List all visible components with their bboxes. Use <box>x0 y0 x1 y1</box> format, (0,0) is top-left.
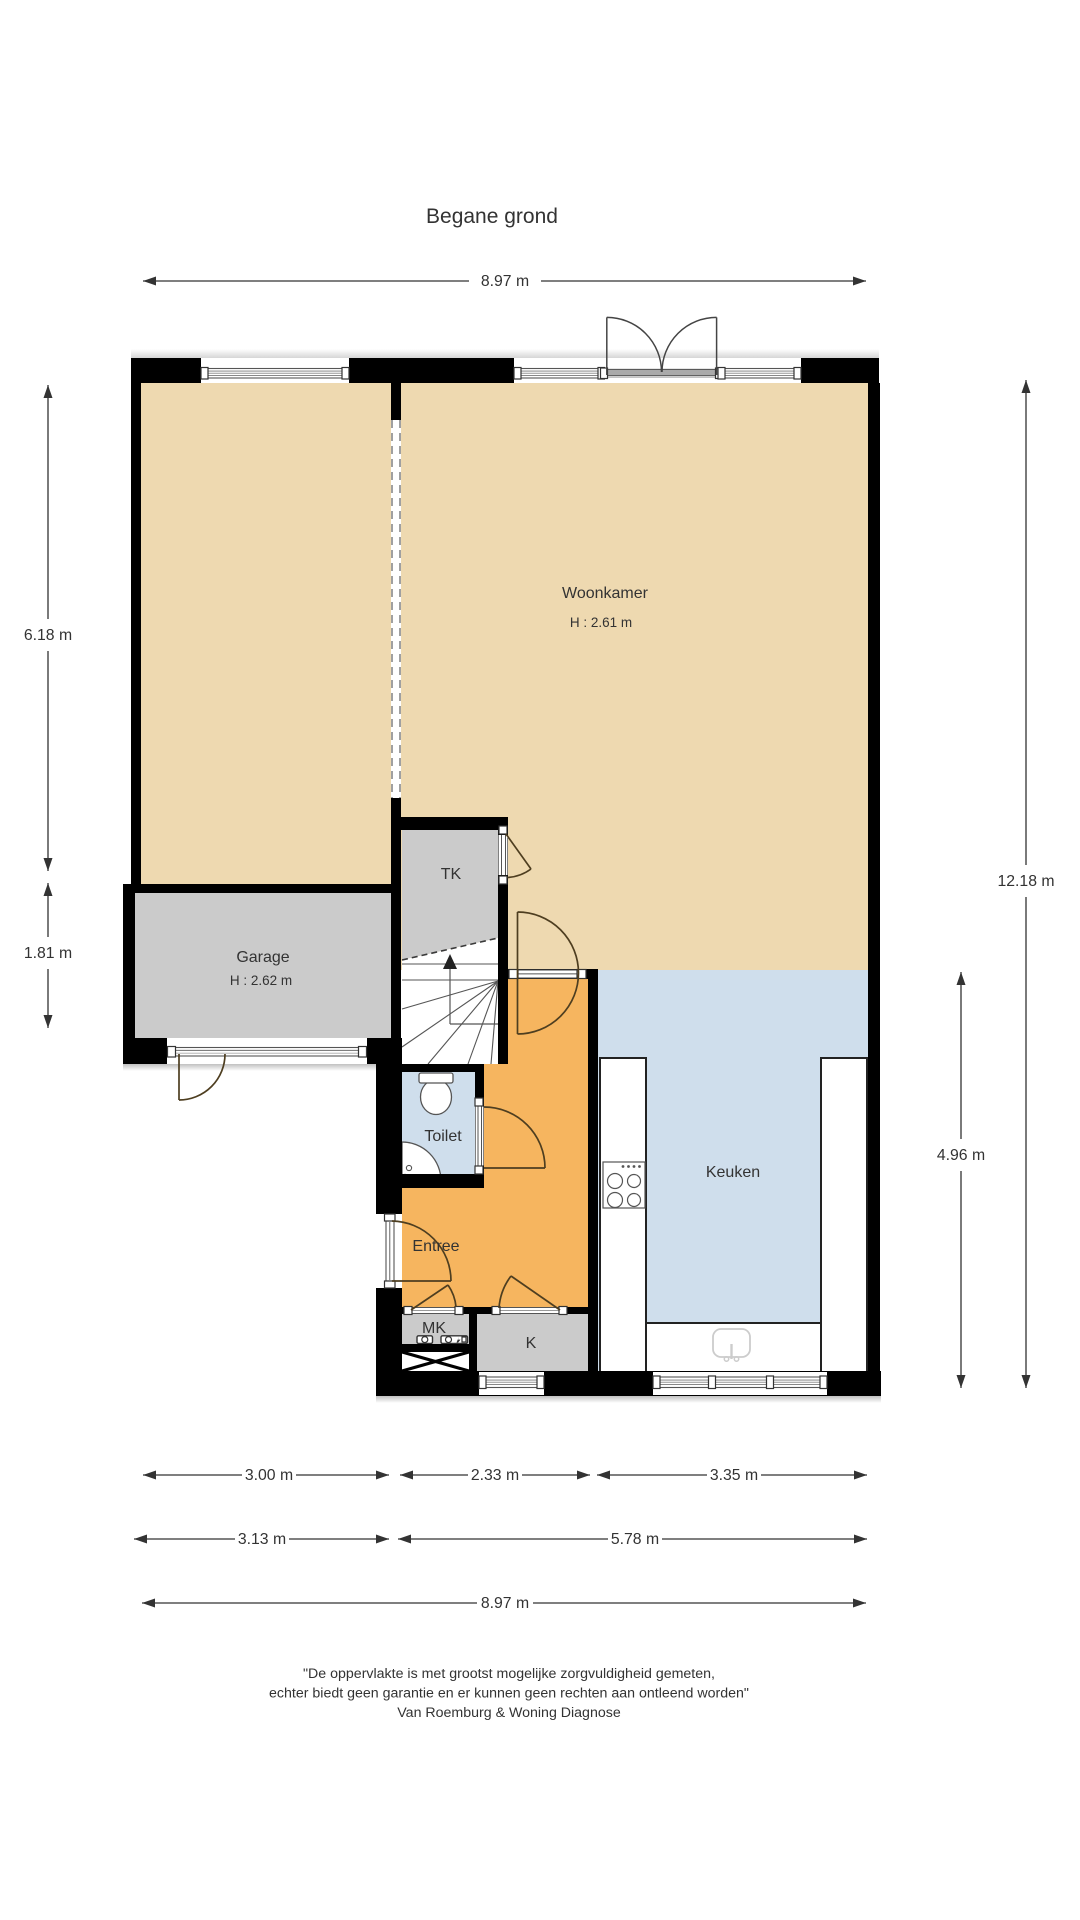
svg-text:Keuken: Keuken <box>706 1164 760 1181</box>
svg-text:8.97 m: 8.97 m <box>481 1595 529 1612</box>
svg-text:K: K <box>526 1335 537 1352</box>
svg-text:Toilet: Toilet <box>424 1128 462 1145</box>
svg-text:"De oppervlakte is met grootst: "De oppervlakte is met grootst mogelijke… <box>303 1666 715 1682</box>
svg-text:12.18 m: 12.18 m <box>997 873 1054 890</box>
svg-text:Entree: Entree <box>412 1238 459 1255</box>
svg-text:Woonkamer: Woonkamer <box>562 585 649 602</box>
svg-text:4.96 m: 4.96 m <box>937 1147 985 1164</box>
svg-text:5.78 m: 5.78 m <box>611 1531 659 1548</box>
svg-text:3.13 m: 3.13 m <box>238 1531 286 1548</box>
svg-text:Begane grond: Begane grond <box>426 205 558 228</box>
svg-text:TK: TK <box>441 866 462 883</box>
svg-text:Van Roemburg & Woning Diagnose: Van Roemburg & Woning Diagnose <box>397 1705 621 1721</box>
svg-text:MK: MK <box>422 1320 446 1337</box>
svg-text:echter biedt geen garantie en: echter biedt geen garantie en er kunnen … <box>269 1686 749 1702</box>
svg-text:1.81 m: 1.81 m <box>24 945 72 962</box>
svg-text:H : 2.62 m: H : 2.62 m <box>230 973 292 988</box>
svg-text:H : 2.61 m: H : 2.61 m <box>570 615 632 630</box>
svg-text:6.18 m: 6.18 m <box>24 627 72 644</box>
svg-text:8.97 m: 8.97 m <box>481 273 529 290</box>
svg-text:Garage: Garage <box>236 949 289 966</box>
svg-text:3.35 m: 3.35 m <box>710 1467 758 1484</box>
svg-text:3.00 m: 3.00 m <box>245 1467 293 1484</box>
svg-text:2.33 m: 2.33 m <box>471 1467 519 1484</box>
